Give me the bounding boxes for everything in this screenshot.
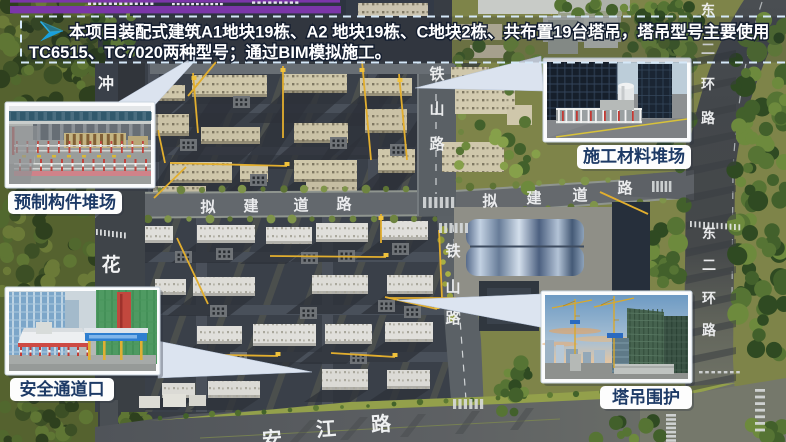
svg-text:建: 建 [526, 189, 542, 207]
svg-text:安全通道口: 安全通道口 [20, 379, 105, 399]
svg-text:路: 路 [701, 110, 716, 126]
svg-text:拟: 拟 [482, 192, 497, 210]
svg-text:预制构件堆场: 预制构件堆场 [14, 192, 116, 212]
svg-text:拟: 拟 [200, 198, 215, 216]
svg-text:路: 路 [370, 411, 393, 436]
svg-text:环: 环 [701, 76, 715, 92]
svg-text:建: 建 [243, 197, 259, 215]
svg-text:江: 江 [315, 417, 337, 441]
svg-text:冲: 冲 [98, 74, 114, 93]
svg-text:塔吊围护: 塔吊围护 [612, 387, 680, 407]
svg-text:路: 路 [336, 195, 352, 213]
svg-text:二: 二 [702, 257, 716, 273]
svg-text:路: 路 [617, 179, 633, 197]
svg-text:山: 山 [429, 101, 444, 118]
svg-text:铁: 铁 [429, 65, 444, 83]
svg-text:环: 环 [702, 290, 716, 306]
svg-text:花: 花 [101, 253, 120, 276]
svg-text:路: 路 [702, 322, 717, 338]
svg-text:安: 安 [261, 426, 283, 442]
svg-text:路: 路 [429, 135, 445, 153]
svg-text:道: 道 [572, 186, 587, 204]
svg-text:铁: 铁 [445, 242, 460, 260]
svg-text:道: 道 [293, 196, 308, 214]
svg-text:施工材料堆场: 施工材料堆场 [583, 146, 685, 166]
svg-text:本项目装配式建筑A1地块19栋、A2 地块19栋、C地块2栋: 本项目装配式建筑A1地块19栋、A2 地块19栋、C地块2栋、共布置19台塔吊，… [69, 22, 769, 42]
svg-text:TC6515、TC7020两种型号；通过BIM模拟施工。: TC6515、TC7020两种型号；通过BIM模拟施工。 [29, 42, 391, 62]
svg-text:山: 山 [445, 279, 460, 296]
